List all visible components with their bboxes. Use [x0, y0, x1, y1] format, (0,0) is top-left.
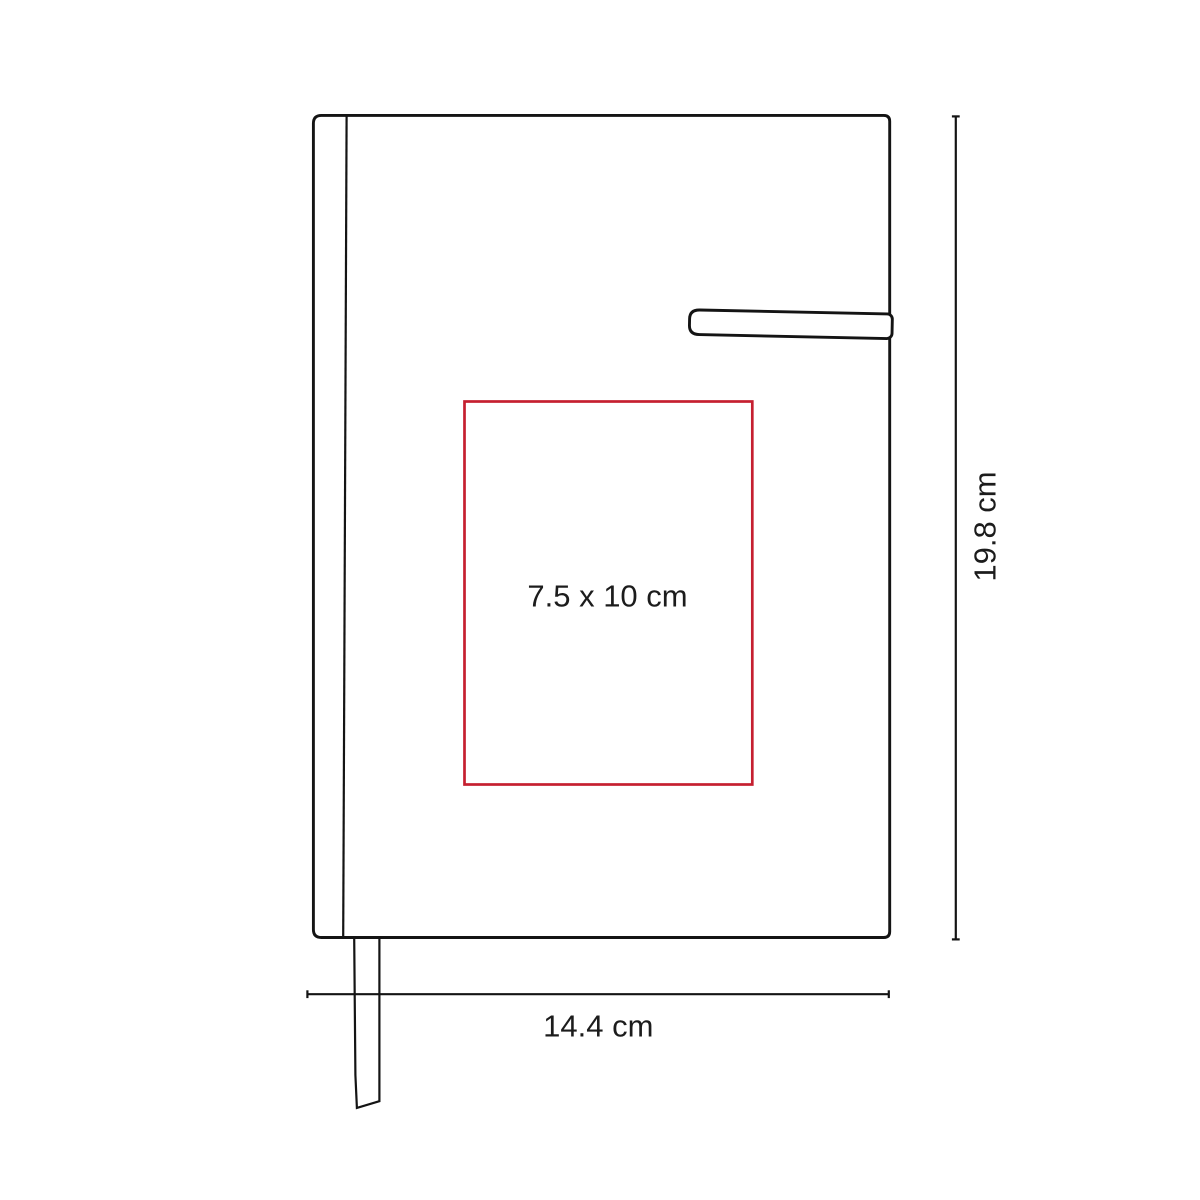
svg-text:19.8 cm: 19.8 cm	[968, 471, 1003, 581]
svg-text:7.5 x 10 cm: 7.5 x 10 cm	[527, 579, 687, 614]
svg-text:14.4 cm: 14.4 cm	[543, 1008, 653, 1043]
